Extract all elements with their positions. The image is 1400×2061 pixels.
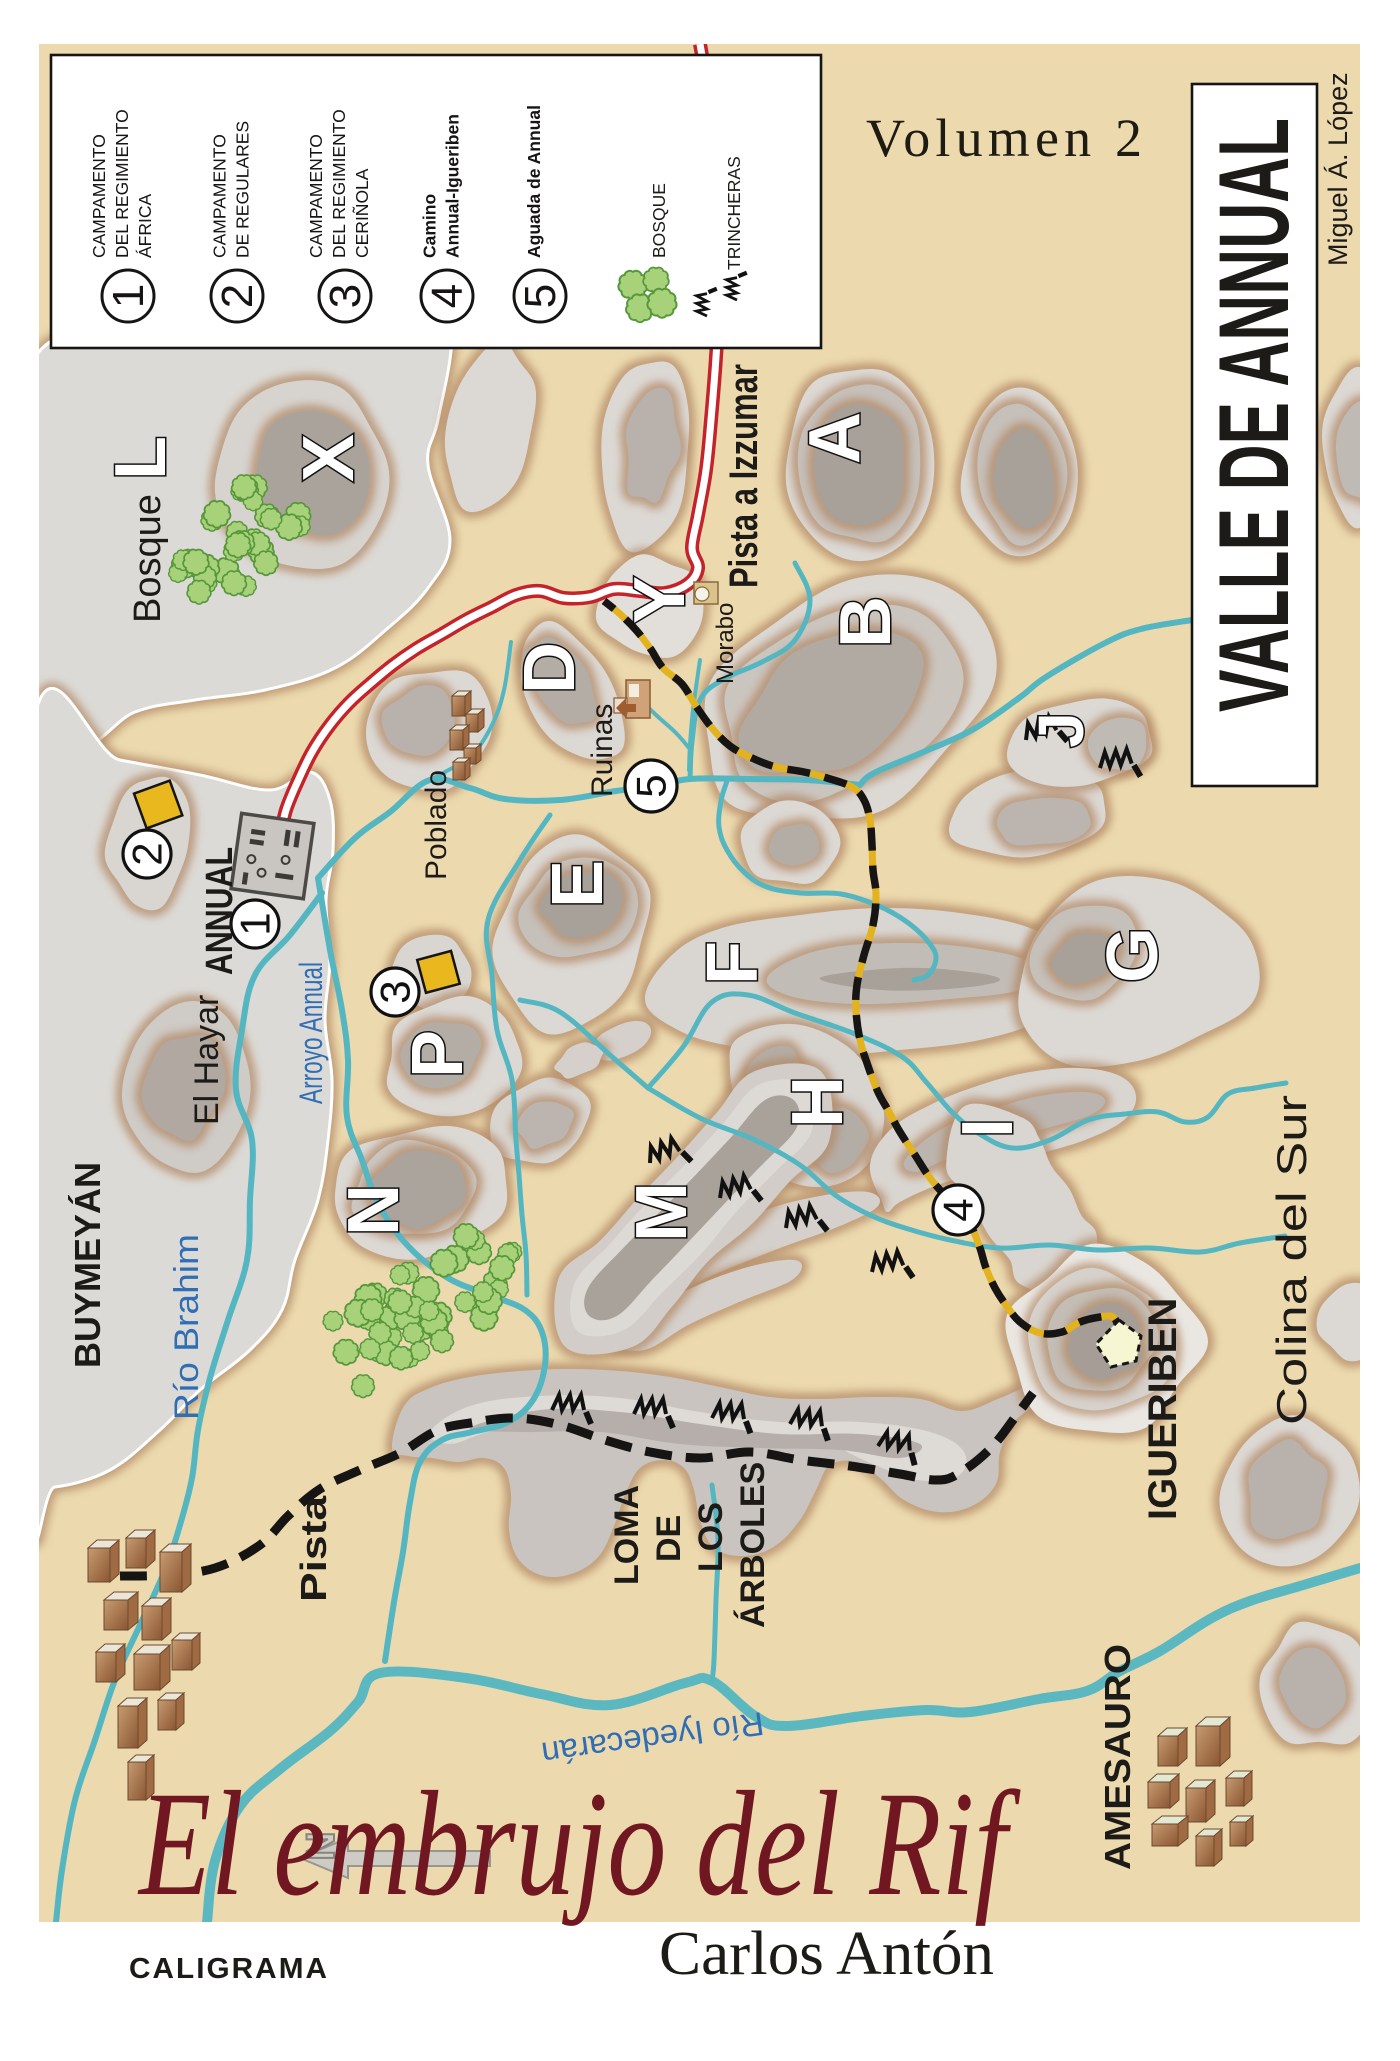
svg-text:CAMPAMENTO: CAMPAMENTO [306,134,326,258]
svg-text:3: 3 [321,284,370,308]
svg-text:CALIGRAMA: CALIGRAMA [129,1953,329,1985]
svg-text:ÁFRICA: ÁFRICA [135,194,155,259]
svg-text:P: P [398,1030,478,1078]
svg-text:DE: DE [650,1515,688,1562]
svg-text:E: E [538,860,618,908]
svg-text:Arroyo Annual: Arroyo Annual [293,962,329,1104]
svg-text:4: 4 [935,1198,982,1221]
svg-text:F: F [693,941,773,985]
svg-text:H: H [778,1076,858,1128]
svg-text:3: 3 [372,980,419,1003]
svg-text:IGUERIBEN: IGUERIBEN [1141,1298,1185,1520]
svg-text:I: I [948,1118,1028,1138]
svg-text:X: X [289,434,369,482]
svg-text:ÁRBOLES: ÁRBOLES [734,1462,772,1628]
svg-text:Camino: Camino [420,194,440,258]
svg-text:Poblado: Poblado [420,770,453,880]
svg-text:5: 5 [516,284,565,308]
svg-text:Morabo: Morabo [712,603,739,684]
svg-text:Río Brahim: Río Brahim [168,1234,206,1420]
svg-text:BOSQUE: BOSQUE [649,183,669,258]
svg-text:CAMPAMENTO: CAMPAMENTO [89,134,109,258]
svg-text:Aguada de Annual: Aguada de Annual [524,105,544,258]
svg-text:Miguel Á. López: Miguel Á. López [1323,72,1353,266]
svg-text:B: B [826,596,906,648]
svg-text:Pista a Izzumar: Pista a Izzumar [722,364,766,588]
svg-text:2: 2 [124,842,171,865]
svg-text:CERIÑOLA: CERIÑOLA [351,168,372,258]
svg-text:Carlos Antón: Carlos Antón [659,1920,994,1988]
svg-text:Bosque: Bosque [127,494,169,623]
svg-text:2: 2 [213,284,262,308]
svg-text:DEL REGIMIENTO: DEL REGIMIENTO [329,109,349,258]
svg-text:M: M [622,1182,702,1242]
svg-text:Y: Y [620,576,700,624]
svg-text:El embrujo del Rif: El embrujo del Rif [137,1761,1020,1927]
svg-text:VALLE DE ANNUAL: VALLE DE ANNUAL [1198,118,1309,712]
svg-text:CAMPAMENTO: CAMPAMENTO [210,134,230,258]
svg-text:LOMA: LOMA [608,1485,646,1585]
svg-text:BUYMEYÁN: BUYMEYÁN [67,1162,108,1368]
svg-text:DE REGULARES: DE REGULARES [233,121,253,258]
svg-text:AMESAURO: AMESAURO [1097,1644,1138,1870]
svg-text:A: A [795,412,875,464]
svg-text:N: N [334,1184,414,1236]
svg-text:Colina del Sur: Colina del Sur [1268,1095,1315,1425]
svg-text:TRINCHERAS: TRINCHERAS [724,156,744,270]
svg-text:5: 5 [628,774,675,797]
svg-text:DEL REGIMIENTO: DEL REGIMIENTO [112,109,132,258]
svg-text:J: J [1025,712,1097,748]
svg-text:1: 1 [104,284,153,308]
svg-text:Pista: Pista [293,1495,334,1602]
svg-text:Ruinas: Ruinas [586,704,619,797]
svg-text:4: 4 [423,284,472,308]
svg-text:ANNUAL: ANNUAL [199,847,241,975]
svg-text:D: D [510,642,590,694]
svg-text:Volumen 2: Volumen 2 [866,108,1142,168]
svg-text:L: L [101,436,181,480]
svg-text:Annual-Igueriben: Annual-Igueriben [443,114,463,258]
svg-text:LOS: LOS [692,1502,730,1572]
svg-text:G: G [1093,927,1173,983]
svg-text:El Hayar: El Hayar [188,995,226,1125]
